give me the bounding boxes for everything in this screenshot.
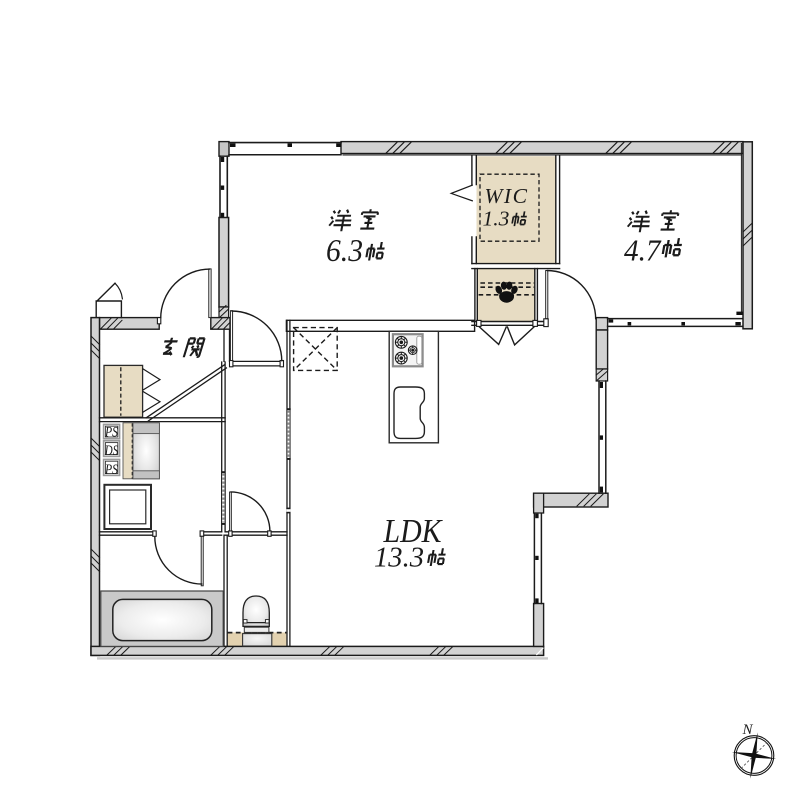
svg-text:N: N bbox=[742, 722, 754, 738]
svg-text:DS: DS bbox=[104, 443, 119, 459]
svg-text:1.3: 1.3 bbox=[483, 207, 510, 231]
svg-text:13.3: 13.3 bbox=[374, 542, 424, 574]
svg-text:6.3: 6.3 bbox=[326, 233, 363, 268]
svg-text:4.7: 4.7 bbox=[624, 233, 662, 268]
svg-text:PS: PS bbox=[104, 462, 118, 478]
svg-text:WIC: WIC bbox=[485, 184, 529, 208]
svg-text:PS: PS bbox=[104, 424, 118, 440]
